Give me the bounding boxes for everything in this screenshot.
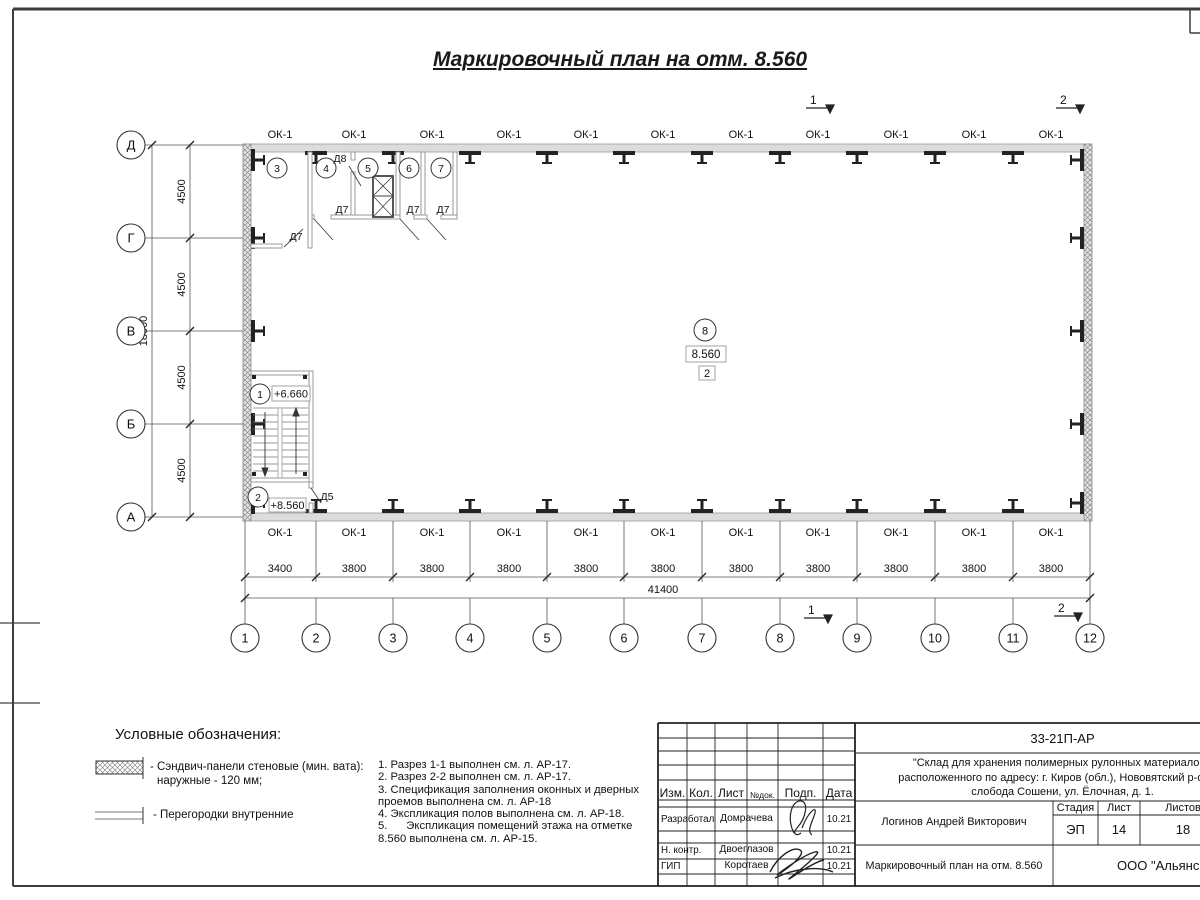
window-label: ОК-1 (342, 527, 367, 539)
axis-row-v: В (127, 324, 136, 339)
titleblock-code: 33-21П-АР (855, 731, 1200, 746)
name-korotaev: Коротаев (715, 860, 778, 871)
col-header-kol: Кол. (687, 786, 715, 800)
axis-row-a: А (127, 510, 136, 525)
axis-col-5: 5 (544, 632, 551, 646)
window-label: ОК-1 (1039, 129, 1064, 141)
dim-row-bay: 4500 (176, 365, 188, 389)
dim-bay: 3800 (729, 563, 753, 575)
col-header-list: Лист (715, 786, 747, 800)
door-labels: Д7 Д7 Д7 Д7 Д8 Д5 (290, 153, 450, 503)
date-razrabotal: 10.21 (823, 814, 855, 825)
shaft (373, 176, 393, 217)
list-value: 14 (1098, 822, 1140, 837)
dim-bay: 3800 (806, 563, 830, 575)
window-label: ОК-1 (884, 129, 909, 141)
window-label: ОК-1 (651, 129, 676, 141)
drawing-sheet: 3 4 5 6 7 1 +6.660 2 +8.560 8 8.560 2 Д7… (0, 0, 1200, 900)
door-d7-label: Д7 (290, 231, 303, 243)
window-label: ОК-1 (729, 129, 754, 141)
window-labels-bottom: ОК-1 ОК-1 ОК-1 ОК-1 ОК-1 ОК-1 ОК-1 ОК-1 … (268, 527, 1064, 539)
section-2-label: 2 (1058, 601, 1065, 615)
listov-value: 18 (1140, 822, 1200, 837)
legend-item-sandwich-line2: наружные - 120 мм; (157, 775, 262, 787)
dim-bay: 3800 (420, 563, 444, 575)
axis-row-g: Г (127, 231, 134, 246)
dim-row-bay: 4500 (176, 272, 188, 296)
project-line3: слобода Сошени, ул. Ёлочная, д. 1. (855, 785, 1200, 800)
door-d5-label: Д5 (321, 491, 334, 503)
legend-title: Условные обозначения: (115, 726, 281, 743)
window-label: ОК-1 (962, 527, 987, 539)
axis-col-12: 12 (1083, 632, 1097, 646)
legend-partition-swatch (95, 807, 143, 824)
axis-col-6: 6 (621, 632, 628, 646)
note-line: 4. Экспликация полов выполнена см. л. АР… (378, 808, 639, 820)
company-name: ООО "Альянс" (1053, 858, 1200, 873)
legend-item-partitions: - Перегородки внутренние (153, 809, 294, 821)
room-8-note: 2 (704, 368, 710, 380)
axis-col-9: 9 (854, 632, 861, 646)
col-header-ndok: №док. (747, 790, 778, 800)
dim-bay: 3800 (497, 563, 521, 575)
drawing-title: Маркировочный план на отм. 8.560 (400, 48, 840, 72)
dim-bay: 3800 (1039, 563, 1063, 575)
left-dimensions: 4500 4500 4500 4500 18000 Д Г В Б А (117, 131, 243, 531)
name-domracheva: Домрачева (715, 813, 778, 824)
col-header-podp: Подп. (778, 786, 823, 800)
role-nkontr: Н. контр. (661, 845, 701, 856)
titleblock-project: "Склад для хранения полимерных рулонных … (855, 756, 1200, 800)
date-nkontr: 10.21 (823, 845, 855, 856)
room-4-number: 4 (323, 163, 329, 175)
axis-col-4: 4 (467, 632, 474, 646)
room-tags: 3 4 5 6 7 1 +6.660 2 +8.560 8 8.560 2 (248, 158, 726, 512)
dim-row-bay: 4500 (176, 179, 188, 203)
col-header-data: Дата (823, 786, 855, 800)
window-label: ОК-1 (651, 527, 676, 539)
window-label: ОК-1 (420, 527, 445, 539)
dim-bay: 3800 (962, 563, 986, 575)
room-5-number: 5 (365, 163, 371, 175)
axis-col-7: 7 (699, 632, 706, 646)
section-2-label: 2 (1060, 93, 1067, 107)
bottom-dimensions: 3400 3800 3800 3800 3800 3800 3800 3800 … (231, 521, 1104, 652)
window-label: ОК-1 (806, 527, 831, 539)
date-gip: 10.21 (823, 861, 855, 872)
door-d7-label: Д7 (437, 204, 450, 216)
note-line: 5. Экспликация помещений этажа на отметк… (378, 820, 639, 832)
note-line: 8.560 выполнена см. л. АР-15. (378, 833, 639, 845)
dim-bay: 3800 (342, 563, 366, 575)
dim-bay: 3800 (884, 563, 908, 575)
axis-col-3: 3 (390, 632, 397, 646)
sheet-frame (0, 9, 1200, 886)
notes-list: 1. Разрез 1-1 выполнен см. л. АР-17. 2. … (378, 759, 639, 845)
col-header-izm: Изм. (658, 786, 687, 800)
name-dvoeglazov: Двоеглазов (715, 844, 778, 855)
door-d7-label: Д7 (336, 204, 349, 216)
window-label: ОК-1 (497, 527, 522, 539)
axis-col-8: 8 (777, 632, 784, 646)
axis-col-10: 10 (928, 632, 942, 646)
axis-col-1: 1 (242, 632, 249, 646)
titleblock-drawing-name: Маркировочный план на отм. 8.560 (855, 860, 1053, 872)
exterior-walls (243, 144, 1092, 521)
window-label: ОК-1 (574, 527, 599, 539)
room-3-number: 3 (274, 163, 280, 175)
stadia-value: ЭП (1053, 822, 1098, 837)
elevation-landing: +6.660 (274, 389, 308, 401)
legend-item-sandwich-line1: - Сэндвич-панели стеновые (мин. вата): (150, 761, 364, 773)
section-marks: 1 2 1 2 (804, 93, 1084, 623)
note-line: 3. Спецификация заполнения оконных и две… (378, 784, 639, 796)
window-label: ОК-1 (342, 129, 367, 141)
note-line: 2. Разрез 2-2 выполнен см. л. АР-17. (378, 771, 639, 783)
chief-name: Логинов Андрей Викторович (855, 816, 1053, 828)
project-line2: расположенного по адресу: г. Киров (обл.… (855, 771, 1200, 786)
axis-col-11: 11 (1007, 632, 1020, 646)
dim-bay: 3800 (651, 563, 675, 575)
door-d8-label: Д8 (334, 153, 347, 165)
window-label: ОК-1 (806, 129, 831, 141)
door-d7-label: Д7 (407, 204, 420, 216)
note-line: 1. Разрез 1-1 выполнен см. л. АР-17. (378, 759, 639, 771)
room-1-number: 1 (257, 389, 263, 401)
note-line: проемов выполнена см. л. АР-18 (378, 796, 639, 808)
list-header: Лист (1098, 802, 1140, 814)
row-bubbles: Д Г В Б А (117, 131, 145, 531)
dim-row-bay: 4500 (176, 458, 188, 482)
axis-row-d: Д (127, 138, 136, 153)
window-label: ОК-1 (574, 129, 599, 141)
dim-bay1: 3400 (268, 563, 292, 575)
legend-sandwich-panel-swatch (96, 761, 143, 774)
listov-header: Листов (1140, 802, 1200, 814)
role-razrabotal: Разработал (661, 814, 714, 825)
dim-total-width: 41400 (648, 584, 679, 596)
window-label: ОК-1 (884, 527, 909, 539)
axis-row-b: Б (127, 417, 136, 432)
room-8-number: 8 (702, 326, 708, 338)
window-labels-top: ОК-1 ОК-1 ОК-1 ОК-1 ОК-1 ОК-1 ОК-1 ОК-1 … (268, 129, 1064, 141)
column-bubbles: 1 2 3 4 5 6 7 8 9 10 11 12 (231, 624, 1104, 652)
window-label: ОК-1 (268, 129, 293, 141)
room-7-number: 7 (438, 163, 444, 175)
window-label: ОК-1 (1039, 527, 1064, 539)
window-label: ОК-1 (729, 527, 754, 539)
axis-col-2: 2 (313, 632, 320, 646)
window-label: ОК-1 (497, 129, 522, 141)
stadia-header: Стадия (1053, 802, 1098, 814)
window-label: ОК-1 (962, 129, 987, 141)
dim-bay: 3800 (574, 563, 598, 575)
role-gip: ГИП (661, 861, 680, 872)
section-1-label: 1 (808, 603, 815, 617)
corner-stamp-box (1190, 9, 1200, 33)
elevation-floor: +8.560 (271, 500, 305, 512)
room-6-number: 6 (406, 163, 412, 175)
room-8-elevation: 8.560 (692, 349, 721, 361)
window-label: ОК-1 (268, 527, 293, 539)
project-line1: "Склад для хранения полимерных рулонных … (855, 756, 1200, 771)
window-label: ОК-1 (420, 129, 445, 141)
room-2-number: 2 (255, 492, 261, 504)
legend-swatches (95, 757, 143, 824)
section-1-label: 1 (810, 93, 817, 107)
signature-razrabotal (790, 801, 815, 835)
